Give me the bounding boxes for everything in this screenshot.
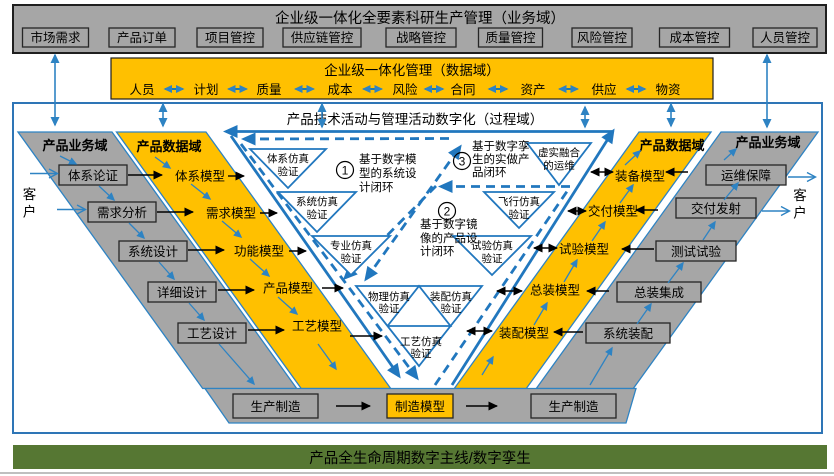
svg-text:体系仿真: 体系仿真: [267, 152, 309, 165]
svg-text:装配模型: 装配模型: [499, 327, 549, 341]
svg-text:1: 1: [342, 164, 349, 178]
svg-text:户: 户: [23, 204, 37, 220]
svg-text:产品数据域: 产品数据域: [639, 138, 704, 153]
svg-text:质量: 质量: [256, 83, 281, 97]
svg-text:验证: 验证: [411, 347, 432, 360]
svg-text:试验模型: 试验模型: [559, 242, 609, 257]
svg-text:物理仿真: 物理仿真: [368, 290, 410, 303]
svg-text:战略管控: 战略管控: [396, 30, 447, 45]
svg-text:产品模型: 产品模型: [263, 282, 313, 296]
svg-text:市场需求: 市场需求: [30, 30, 81, 45]
svg-text:基于数字模: 基于数字模: [359, 152, 417, 166]
svg-text:产品全生命周期数字主线/数字孪生: 产品全生命周期数字主线/数字孪生: [309, 449, 531, 467]
svg-text:需求分析: 需求分析: [97, 206, 147, 220]
svg-text:总装模型: 总装模型: [530, 284, 580, 298]
svg-text:验证: 验证: [441, 302, 462, 315]
svg-text:产品订单: 产品订单: [117, 31, 167, 45]
svg-text:人员: 人员: [129, 83, 154, 97]
svg-text:户: 户: [793, 205, 807, 221]
svg-text:型的系统设: 型的系统设: [359, 166, 417, 180]
svg-text:工艺模型: 工艺模型: [292, 320, 342, 334]
svg-text:计划: 计划: [193, 83, 218, 97]
svg-text:合同: 合同: [450, 82, 475, 97]
svg-text:项目管控: 项目管控: [205, 30, 256, 45]
svg-text:验证: 验证: [278, 165, 299, 178]
svg-text:质量管控: 质量管控: [485, 30, 536, 45]
svg-text:交付模型: 交付模型: [588, 204, 638, 219]
svg-text:风险管控: 风险管控: [577, 30, 628, 45]
svg-text:2: 2: [444, 205, 451, 219]
svg-text:测试试验: 测试试验: [671, 244, 722, 259]
svg-text:功能模型: 功能模型: [234, 245, 284, 259]
svg-text:生产制造: 生产制造: [250, 400, 301, 414]
svg-text:飞行仿真: 飞行仿真: [498, 195, 540, 208]
svg-text:的运维: 的运维: [543, 159, 575, 172]
svg-text:供应: 供应: [591, 82, 616, 97]
svg-text:验证: 验证: [341, 252, 362, 265]
svg-text:工艺设计: 工艺设计: [187, 326, 237, 341]
svg-text:生的实做产: 生的实做产: [472, 152, 530, 166]
svg-text:企业级一体化全要素科研生产管理（业务域）: 企业级一体化全要素科研生产管理（业务域）: [275, 9, 565, 27]
svg-text:像的产品设: 像的产品设: [420, 231, 478, 245]
svg-text:成本: 成本: [327, 83, 353, 97]
svg-text:装配仿真: 装配仿真: [430, 290, 472, 303]
svg-text:总装集成: 总装集成: [634, 285, 684, 300]
svg-text:基于数字孪: 基于数字孪: [472, 139, 530, 153]
svg-text:交付发射: 交付发射: [691, 201, 741, 216]
svg-text:基于数字镜: 基于数字镜: [420, 217, 478, 231]
svg-text:品闭环: 品闭环: [472, 166, 507, 179]
svg-text:人员管控: 人员管控: [760, 30, 811, 45]
svg-text:3: 3: [459, 155, 466, 169]
svg-text:详细设计: 详细设计: [157, 285, 207, 300]
svg-text:工艺仿真: 工艺仿真: [400, 335, 442, 348]
svg-text:制造模型: 制造模型: [395, 400, 445, 414]
svg-text:运维保障: 运维保障: [721, 168, 771, 183]
svg-text:物资: 物资: [655, 83, 680, 97]
svg-text:专业仿真: 专业仿真: [330, 239, 372, 252]
svg-text:资产: 资产: [520, 83, 545, 97]
svg-text:验证: 验证: [509, 208, 530, 221]
svg-text:产品技术活动与管理活动数字化（过程域）: 产品技术活动与管理活动数字化（过程域）: [287, 112, 544, 127]
svg-text:客: 客: [23, 186, 37, 202]
svg-text:计闭环: 计闭环: [420, 245, 455, 258]
svg-text:计闭环: 计闭环: [359, 181, 394, 194]
svg-text:客: 客: [793, 187, 807, 203]
svg-text:产品数据域: 产品数据域: [136, 139, 201, 154]
svg-text:体系模型: 体系模型: [175, 170, 225, 184]
svg-text:产品业务域: 产品业务域: [735, 135, 800, 150]
svg-text:需求模型: 需求模型: [206, 207, 256, 221]
svg-text:装备模型: 装备模型: [615, 170, 665, 184]
svg-text:生产制造: 生产制造: [548, 400, 599, 414]
svg-text:体系论证: 体系论证: [68, 169, 119, 183]
svg-text:系统仿真: 系统仿真: [296, 195, 338, 208]
svg-text:企业级一体化管理（数据域）: 企业级一体化管理（数据域）: [324, 62, 500, 78]
svg-text:验证: 验证: [379, 302, 400, 315]
svg-text:系统装配: 系统装配: [603, 327, 654, 341]
svg-text:成本管控: 成本管控: [669, 30, 720, 45]
svg-text:虚实融合: 虚实融合: [538, 146, 580, 159]
svg-text:系统设计: 系统设计: [128, 244, 178, 259]
svg-text:验证: 验证: [482, 252, 503, 265]
svg-text:风险: 风险: [392, 82, 418, 97]
svg-text:供应链管控: 供应链管控: [291, 30, 354, 45]
svg-text:产品业务域: 产品业务域: [42, 138, 107, 153]
svg-text:验证: 验证: [307, 208, 328, 221]
